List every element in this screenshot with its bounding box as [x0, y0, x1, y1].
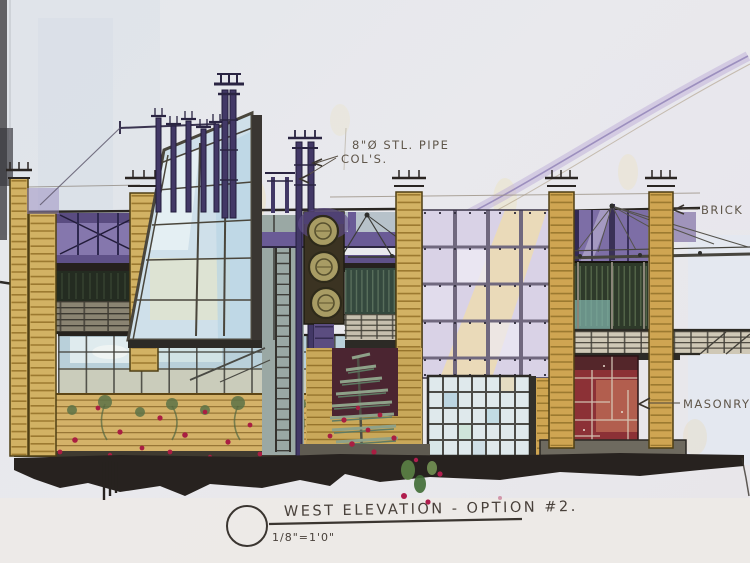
glass-block-wall: [428, 376, 551, 456]
brick-label: BRICK: [701, 203, 743, 217]
pier-left-a: [27, 188, 59, 456]
masonry-label: MASONRY: [683, 397, 750, 411]
elevation-drawing: 8"Ø STL. PIPE COL'S. BRICK MASONRY WEST …: [0, 0, 750, 563]
drawing-scale: 1/8"=1'0": [272, 531, 335, 544]
annotation-pipe-cols: 8"Ø STL. PIPE COL'S.: [300, 128, 449, 183]
mast-short-pair: [265, 173, 295, 213]
pier-right-b: [645, 170, 677, 448]
sketch-photo: 8"Ø STL. PIPE COL'S. BRICK MASONRY WEST …: [0, 0, 750, 563]
ground-line: [14, 453, 749, 500]
pipe-cols-label-line2: COL'S.: [341, 152, 388, 166]
tree-zone: [300, 348, 430, 458]
medallions: [308, 216, 341, 318]
pier-right-a: [545, 170, 578, 448]
curtain-wall: [422, 210, 555, 378]
pipe-cols-label-line1: 8"Ø STL. PIPE: [352, 138, 449, 152]
